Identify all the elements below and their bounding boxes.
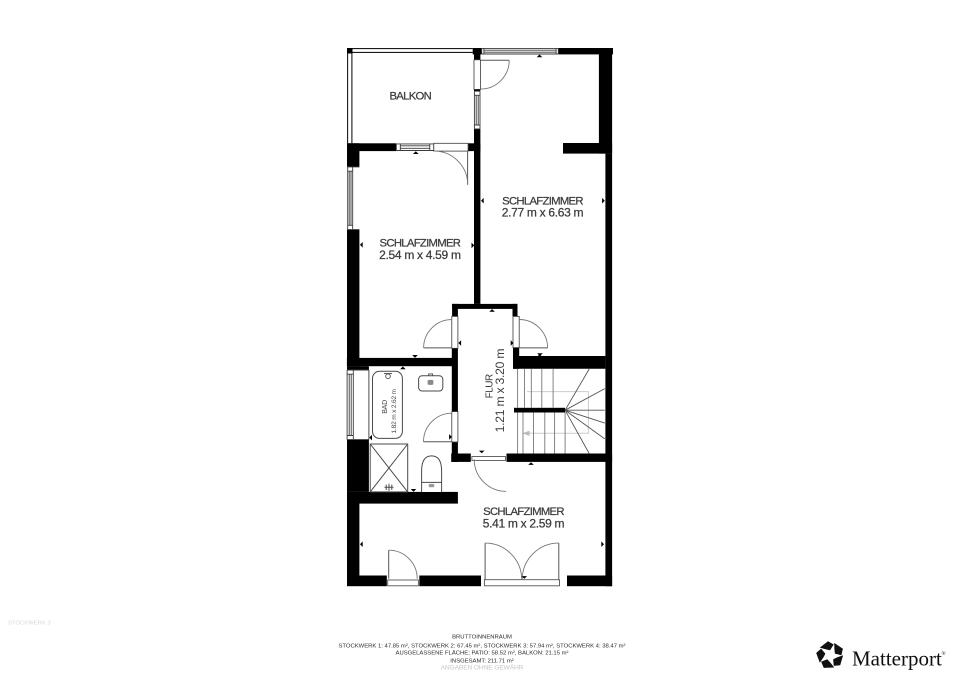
- svg-text:ANGABEN OHNE GEWÄHR: ANGABEN OHNE GEWÄHR: [441, 663, 524, 671]
- svg-text:®: ®: [942, 650, 946, 657]
- svg-text:STOCKWERK 1: 47.85 m², STOCKWE: STOCKWERK 1: 47.85 m², STOCKWERK 2: 67.4…: [339, 643, 626, 649]
- svg-text:2.54 m x 4.59 m: 2.54 m x 4.59 m: [379, 248, 461, 262]
- svg-text:1.21 m x 3.20 m: 1.21 m x 3.20 m: [493, 349, 507, 433]
- svg-text:Matterport: Matterport: [852, 647, 942, 671]
- svg-text:STOCKWERK 3: STOCKWERK 3: [8, 620, 51, 626]
- svg-text:BAD: BAD: [382, 400, 389, 414]
- svg-text:BRUTTOINNENRAUM: BRUTTOINNENRAUM: [452, 635, 512, 641]
- svg-text:AUSGELASSENE FLÄCHE; PATIO: 58: AUSGELASSENE FLÄCHE; PATIO: 58.52 m², BA…: [396, 650, 569, 657]
- svg-text:BALKON: BALKON: [389, 90, 431, 102]
- svg-text:1.82 m x 2.62 m: 1.82 m x 2.62 m: [391, 388, 398, 433]
- svg-text:2.77 m x 6.63 m: 2.77 m x 6.63 m: [502, 206, 584, 220]
- svg-text:5.41 m x 2.59 m: 5.41 m x 2.59 m: [483, 517, 565, 531]
